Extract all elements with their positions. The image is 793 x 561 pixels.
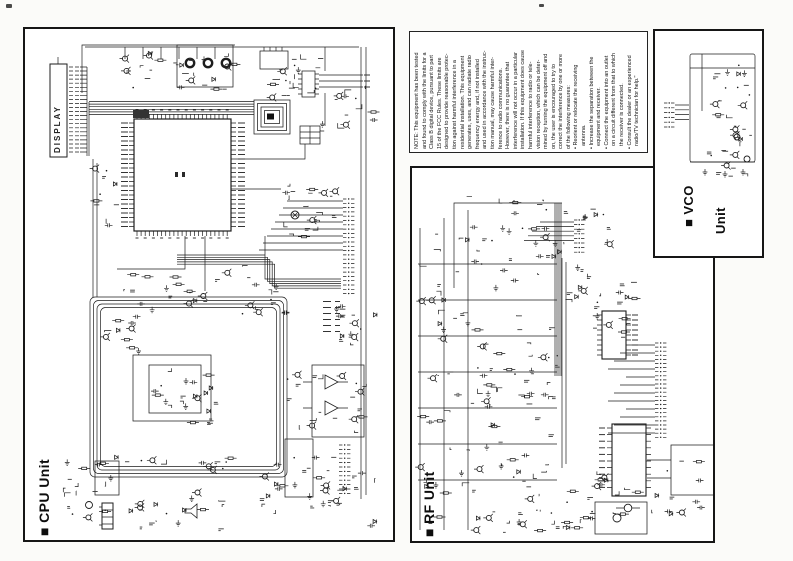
cpu-unit-label: ■ CPU Unit: [36, 436, 54, 536]
cpu-unit-schematic-drawing: [25, 29, 393, 540]
scanned-schematic-page: DISPLAY ■ CPU Unit NOTE: This equipment …: [0, 0, 793, 561]
vco-unit-label: ■ VCO Unit: [665, 183, 699, 251]
scan-artifact-mark: [6, 4, 12, 8]
vco-label-line2: Unit: [713, 183, 729, 234]
scan-artifact-mark: [539, 4, 544, 7]
fcc-notice-text: NOTE: This equipment has been tested and…: [414, 36, 643, 149]
rf-unit-label: ■ RF Unit: [421, 453, 439, 537]
vco-unit-page: ■ VCO Unit: [653, 29, 764, 258]
vco-label-line1: ■ VCO: [681, 185, 696, 227]
display-connector-label: DISPLAY: [53, 65, 66, 153]
fcc-notice-box: NOTE: This equipment has been tested and…: [409, 31, 648, 153]
cpu-unit-page: DISPLAY ■ CPU Unit: [23, 27, 395, 542]
